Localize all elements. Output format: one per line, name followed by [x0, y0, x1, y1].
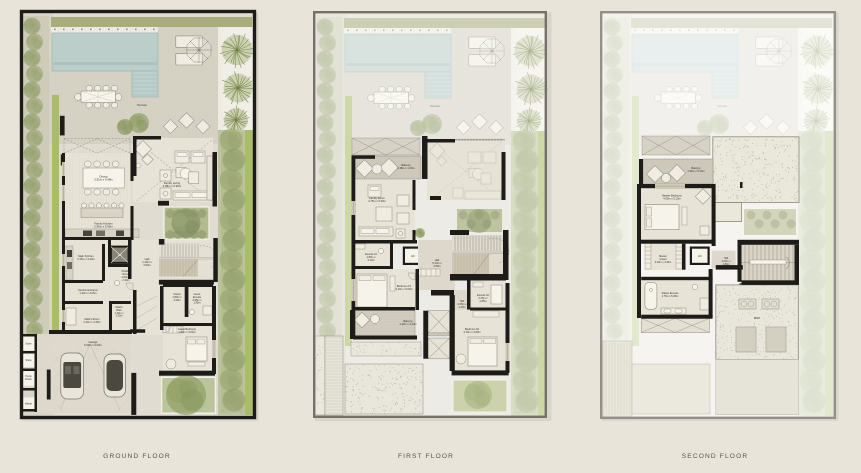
svg-text:GROUND FLOOR: GROUND FLOOR: [103, 453, 171, 460]
svg-text:Guest Bedroom3.60m x 3.60m: Guest Bedroom3.60m x 3.60m: [178, 327, 196, 334]
svg-text:Lift: Lift: [698, 254, 702, 258]
svg-text:Maid's Room2.30m x 3.45m: Maid's Room2.30m x 3.45m: [83, 317, 100, 324]
svg-text:Master Bedroom4.05m x 5.10m: Master Bedroom4.05m x 5.10m: [662, 194, 683, 201]
svg-text:Family Living4.88m x 5.90m: Family Living4.88m x 5.90m: [163, 181, 182, 188]
svg-text:MEP: MEP: [754, 316, 761, 320]
svg-text:Bedroom 023.10m x 3.80m: Bedroom 023.10m x 3.80m: [463, 327, 480, 334]
svg-text:Service Entrance1.20m x 3.05m: Service Entrance1.20m x 3.05m: [78, 288, 98, 295]
svg-text:Family Kitchen2.95m x 5.40m: Family Kitchen2.95m x 5.40m: [94, 222, 113, 229]
svg-text:SECOND FLOOR: SECOND FLOOR: [682, 453, 749, 460]
svg-text:Store: Store: [26, 359, 33, 362]
svg-text:FIRST FLOOR: FIRST FLOOR: [398, 453, 454, 460]
svg-text:PumpRoom: PumpRoom: [25, 375, 32, 381]
svg-text:Family Room4.75m x 5.20m: Family Room4.75m x 5.20m: [368, 196, 387, 203]
svg-text:Terrace: Terrace: [137, 103, 147, 107]
svg-text:Master Ensuite2.75m x 5.30m: Master Ensuite2.75m x 5.30m: [662, 292, 679, 298]
svg-text:Waste: Waste: [25, 403, 33, 406]
svg-text:Main Kitchen3.15m x 3.40m: Main Kitchen3.15m x 3.40m: [77, 254, 96, 261]
svg-text:Lift: Lift: [411, 254, 415, 258]
svg-text:Store: Store: [26, 343, 33, 346]
svg-text:Bedroom 013.10m x 5.00m: Bedroom 013.10m x 5.00m: [395, 284, 412, 291]
svg-text:Lift: Lift: [118, 253, 122, 257]
